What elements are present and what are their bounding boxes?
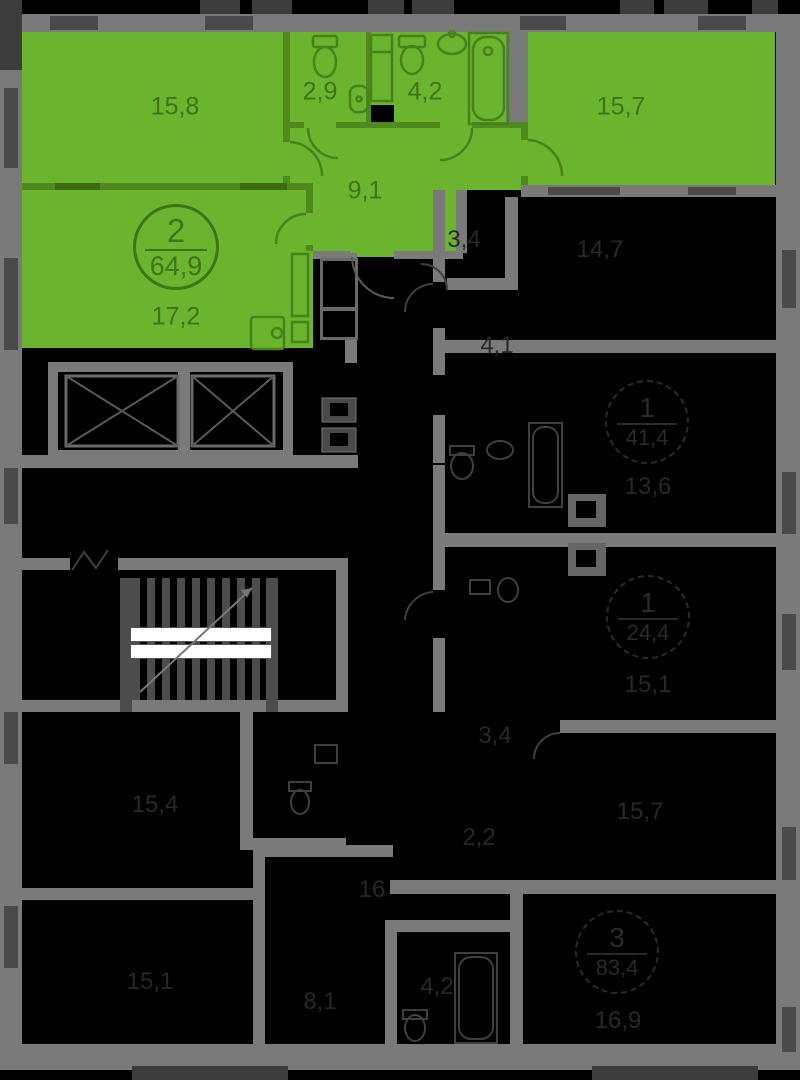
door-opening: [70, 558, 118, 570]
neighbor-area-label: 16,9: [595, 1007, 642, 1035]
neighbor-badge-rooms: 3: [609, 924, 625, 952]
duct-shaft: [320, 308, 358, 340]
wall: [510, 894, 523, 1046]
facade-mark: [0, 0, 22, 70]
inner-wall: [506, 32, 528, 128]
window-mark: [4, 88, 18, 168]
wall: [385, 932, 397, 1046]
window-mark: [4, 258, 18, 350]
wall: [336, 558, 348, 712]
neighbor-toilet-icon: [450, 446, 474, 479]
area-label-hall: 9,1: [348, 177, 383, 206]
facade-mark: [592, 1066, 758, 1080]
window-mark: [4, 906, 18, 968]
wall-top: [0, 14, 800, 32]
door-opening: [283, 142, 290, 176]
neighbor-bathtub-icon: [529, 423, 562, 507]
window-mark: [782, 250, 796, 308]
area-label-bath: 4,2: [408, 78, 443, 107]
facade-mark: [252, 0, 292, 14]
window-mark: [520, 16, 566, 30]
neighbor-area-label: 4,1: [480, 332, 513, 360]
wall: [433, 465, 445, 712]
facade-mark: [132, 1066, 288, 1080]
window-mark: [782, 827, 796, 880]
window-mark: [205, 16, 253, 30]
neighbor-area-label: 4,2: [420, 973, 453, 1001]
wall: [445, 533, 776, 547]
neighbor-area-label: 15,1: [127, 968, 174, 996]
facade-mark: [412, 0, 454, 14]
neighbor-apartment-badge: 1 24,4: [606, 575, 690, 659]
neighbor-badge-area: 24,4: [627, 621, 670, 645]
facade-mark: [752, 0, 778, 14]
neighbor-badge-area: 83,4: [596, 956, 639, 980]
wall-detail: [55, 183, 100, 190]
stair-landing: [130, 627, 272, 642]
window-mark: [782, 472, 796, 534]
wall-detail: [548, 187, 620, 195]
window-mark: [782, 1007, 796, 1052]
wall: [447, 278, 518, 290]
wall: [390, 880, 776, 894]
neighbor-apartment-badge: 1 41,4: [605, 380, 689, 464]
stair-landing: [130, 644, 272, 659]
window-mark: [50, 16, 98, 30]
elevator-block: [48, 362, 293, 460]
neighbor-toilet-icon: [470, 578, 518, 602]
room-shaft[interactable]: [370, 32, 394, 105]
door-opening: [304, 122, 336, 128]
wall: [22, 888, 253, 900]
door-opening: [306, 213, 313, 245]
area-label-living: 15,8: [151, 93, 200, 122]
neighbor-area-label: 8,1: [303, 988, 336, 1016]
neighbor-sink-icon: [487, 441, 513, 459]
neighbor-area-label: 15,4: [132, 791, 179, 819]
neighbor-badge-rooms: 1: [640, 589, 656, 617]
neighbor-area-label: 2,2: [462, 824, 495, 852]
door-opening: [440, 122, 472, 128]
shaft-boxes: [322, 398, 606, 576]
neighbor-area-label: 16: [359, 876, 386, 904]
neighbor-area-label: 13,6: [625, 473, 672, 501]
facade-mark: [664, 0, 708, 14]
wall: [0, 700, 348, 712]
area-label-kitchen: 17,2: [152, 303, 201, 332]
facade-mark: [620, 0, 654, 14]
neighbor-toilet-icon: [289, 782, 311, 814]
neighbor-toilet-icon: [403, 1010, 427, 1041]
door-opening: [433, 375, 445, 415]
wall: [240, 712, 253, 840]
neighbor-washer-icon: [315, 745, 337, 763]
wall: [253, 845, 393, 857]
neighbor-badge-rooms: 1: [639, 394, 655, 422]
door-opening: [433, 590, 445, 638]
badge-rooms-count: 2: [167, 214, 185, 248]
wall: [560, 720, 776, 733]
neighbor-apartment-badge: 3 83,4: [575, 910, 659, 994]
duct-shaft: [320, 258, 358, 310]
wall: [505, 197, 518, 282]
neighbor-area-label: 3,4: [447, 226, 480, 254]
neighbor-area-label: 3,4: [478, 722, 511, 750]
neighbor-area-label: 15,1: [625, 671, 672, 699]
wall: [385, 920, 515, 932]
apartment-badge[interactable]: 2 64,9: [133, 204, 219, 290]
facade-mark: [200, 0, 240, 14]
area-label-wc: 2,9: [303, 78, 338, 107]
facade-mark: [368, 0, 404, 14]
area-label-bedroom: 15,7: [597, 93, 646, 122]
window-mark: [698, 16, 746, 30]
floor-plan: 15,8 2,9 4,2 15,7 9,1 17,2 2 64,9: [0, 0, 800, 1080]
elevator-divider: [178, 372, 190, 450]
neighbor-area-label: 14,7: [577, 236, 624, 264]
window-mark: [782, 614, 796, 670]
neighbor-badge-area: 41,4: [626, 426, 669, 450]
wall: [253, 850, 265, 1048]
door-opening: [521, 140, 528, 176]
wall-right: [776, 14, 800, 1064]
badge-total-area: 64,9: [150, 252, 203, 281]
entrance-door-arc: [352, 257, 394, 298]
neighbor-bathtub-icon: [455, 953, 497, 1043]
wall-detail: [240, 183, 287, 190]
inner-wall: [366, 32, 371, 128]
room-bedroom[interactable]: [528, 32, 775, 185]
door-opening: [433, 282, 445, 328]
wall-detail: [688, 187, 736, 195]
room-hall-upper[interactable]: [288, 128, 528, 190]
neighbor-area-label: 15,7: [617, 798, 664, 826]
